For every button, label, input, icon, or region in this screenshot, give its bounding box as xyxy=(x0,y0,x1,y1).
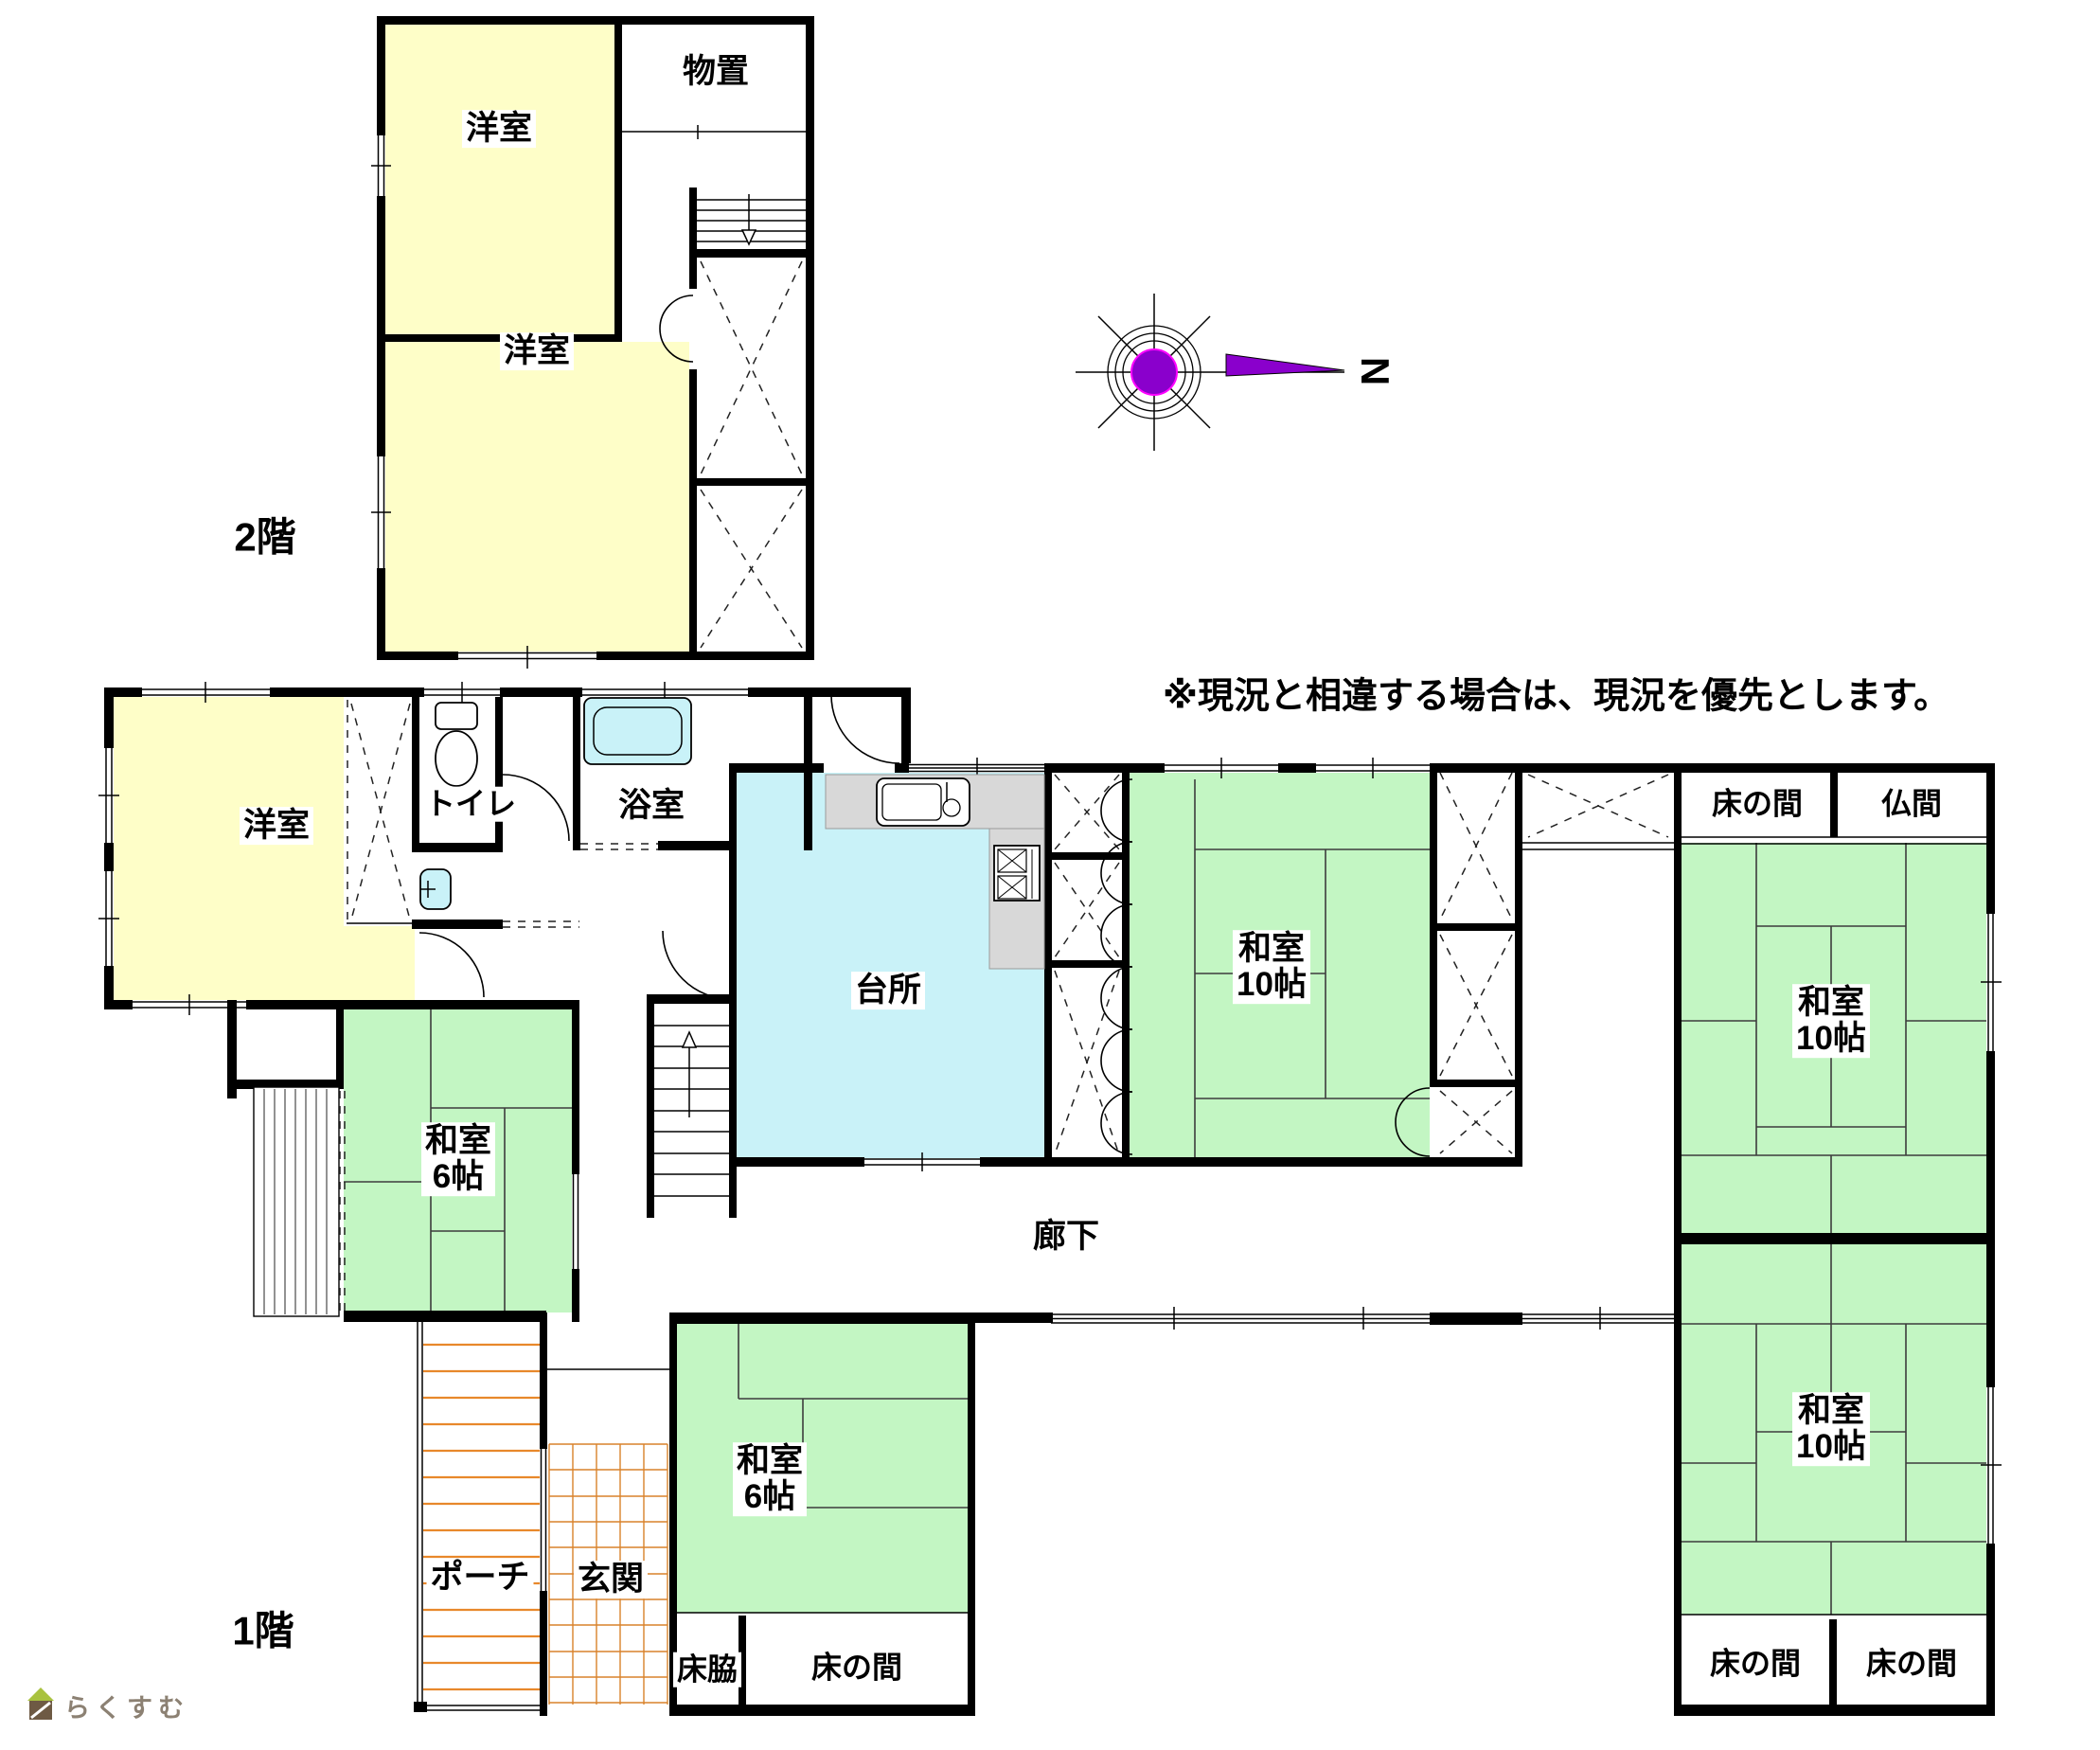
room-label-yoshitsu: 洋室 xyxy=(240,807,313,845)
room-label-tokowaki: 床脇 xyxy=(673,1652,741,1687)
room-label-washitsu6-south: 和室 6帖 xyxy=(733,1442,807,1516)
floor-label-2f: 2階 xyxy=(230,514,299,559)
floorplan-drawing xyxy=(0,0,2100,1750)
room-label-tokonoma-ne: 床の間 xyxy=(1708,787,1806,822)
room-label-butsuma: 仏間 xyxy=(1878,787,1946,822)
room-label-toilet: トイレ xyxy=(421,787,520,822)
stairs-1f xyxy=(647,994,737,1218)
room-2f-yoshitsu2 xyxy=(385,342,689,652)
veranda xyxy=(254,1087,339,1316)
door-arc-hall-kitchen xyxy=(663,931,731,999)
room-2f-yoshitsu1 xyxy=(385,25,614,334)
watermark-text: らくすむ xyxy=(64,1687,189,1724)
room-label-2f-yoshitsu2: 洋室 xyxy=(500,332,574,370)
room-label-genkan: 玄関 xyxy=(574,1561,648,1598)
door-arc-back-entry xyxy=(831,695,899,763)
genkan-tiles xyxy=(547,1369,669,1705)
compass-north-label: N xyxy=(1352,357,1397,385)
kitchen-stove-icon xyxy=(994,846,1040,901)
shoji-line-west xyxy=(340,1091,345,1312)
closet-kitchen-east xyxy=(1052,769,1130,1167)
door-arc-yoshitsu xyxy=(419,933,484,997)
room-label-tokonoma-se-right: 床の間 xyxy=(1862,1647,1961,1682)
floor-label-1f: 1階 xyxy=(228,1608,297,1652)
floor-1f-plan xyxy=(98,682,2002,1716)
room-label-2f-yoshitsu1: 洋室 xyxy=(462,110,536,148)
room-label-washitsu10-center: 和室 10帖 xyxy=(1233,930,1310,1004)
stairs-2f xyxy=(697,194,806,244)
room-label-2f-monooki: 物置 xyxy=(679,53,753,91)
disclaimer-note: ※現況と相違する場合は、現況を優先とします。 xyxy=(1163,667,1949,719)
floorplan-page: 2階 洋室 物置 洋室 1階 洋室 トイレ 浴室 台所 和室 10帖 床の間 仏… xyxy=(0,0,2100,1750)
closet-2f xyxy=(701,261,802,648)
room-label-porch: ポーチ xyxy=(426,1559,533,1597)
toilet-icon xyxy=(436,703,477,786)
room-label-bath: 浴室 xyxy=(614,787,688,825)
stairs-up-arrow xyxy=(683,1032,696,1047)
compass-center-dot xyxy=(1131,349,1177,395)
compass xyxy=(1076,294,1344,451)
room-label-rouka: 廊下 xyxy=(1029,1218,1103,1256)
room-label-washitsu10-east2: 和室 10帖 xyxy=(1792,1392,1870,1466)
room-label-kitchen: 台所 xyxy=(851,972,925,1009)
porch xyxy=(414,1314,547,1712)
room-label-washitsu10-east1: 和室 10帖 xyxy=(1792,984,1870,1058)
bathtub-icon xyxy=(584,698,691,764)
washbasin-icon xyxy=(420,869,451,909)
room-label-tokonoma-se-left: 床の間 xyxy=(1706,1647,1805,1682)
room-label-washitsu6-west: 和室 6帖 xyxy=(421,1122,495,1196)
kitchen-sink-icon xyxy=(877,778,970,826)
room-label-tokonoma-s: 床の間 xyxy=(808,1651,906,1686)
watermark: らくすむ xyxy=(25,1687,189,1724)
door-arc-2f-closet-top xyxy=(660,295,693,329)
closet-north-east xyxy=(1522,775,1674,849)
room-1f-washitsu6-south xyxy=(677,1322,968,1613)
floor-2f-plan xyxy=(371,16,814,669)
corridor-window-line xyxy=(975,1307,1674,1330)
room-1f-yoshitsu xyxy=(113,696,344,1001)
